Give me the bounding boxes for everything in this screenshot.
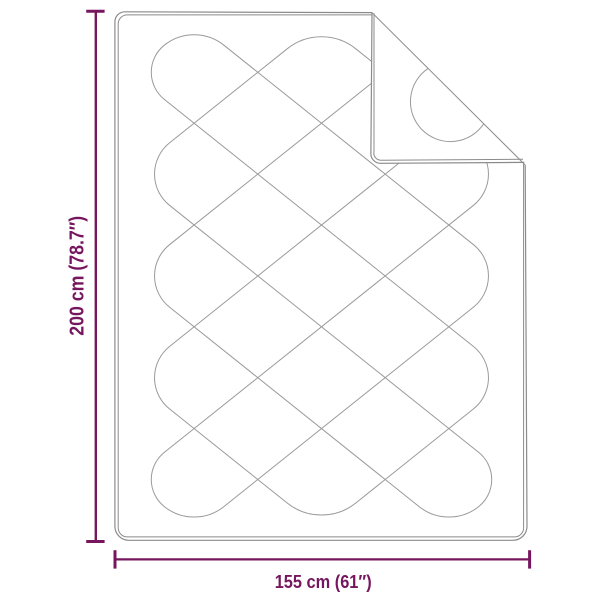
svg-text:155 cm (61″): 155 cm (61″) — [275, 571, 372, 592]
svg-text:200 cm (78.7″): 200 cm (78.7″) — [67, 216, 89, 336]
